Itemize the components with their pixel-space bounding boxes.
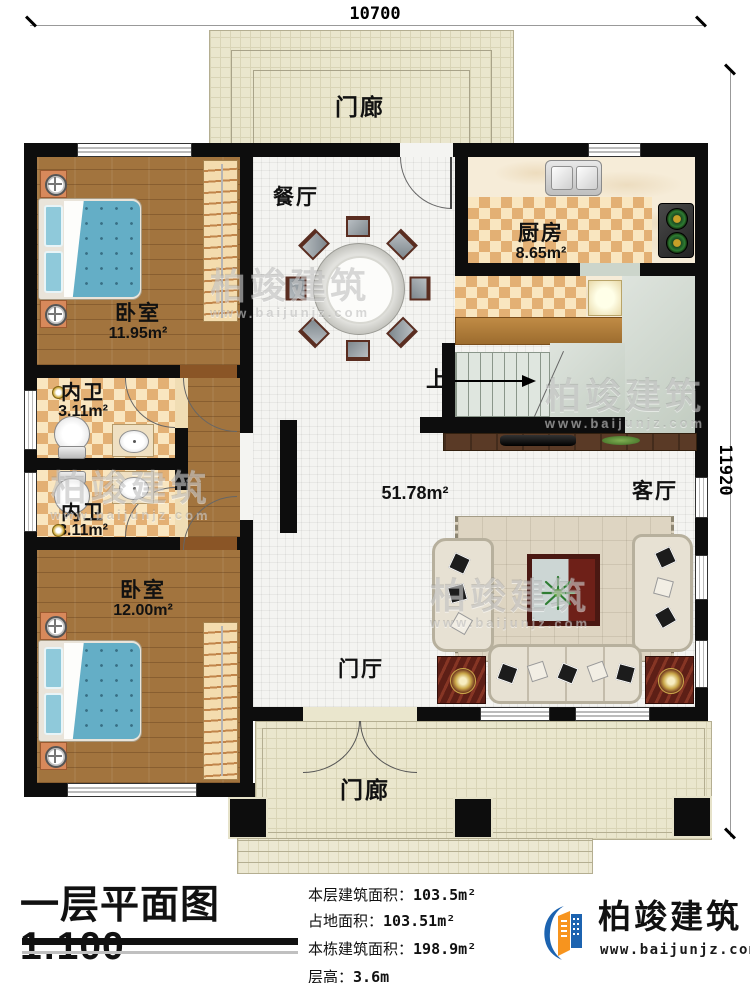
dining-chair [410,277,431,301]
sink-basin-icon [119,477,149,501]
window [588,143,641,157]
pillow [450,612,473,635]
knob-icon [45,174,67,196]
pillow [654,606,677,629]
plan-title: 一层平面图1:100 [20,886,305,968]
plant-decor [602,436,640,445]
pillow [448,552,471,575]
room-area-kitchen: 8.65m² [498,246,584,263]
porch-steps [237,838,593,874]
pillow [44,251,63,293]
room-label-foyer: 门厅 [318,659,404,681]
wall-tv [420,417,625,433]
brand-name: 柏竣建筑 [598,900,748,935]
wall-kitchen-west [455,143,468,276]
door-leaf [450,157,452,209]
dimension-top-value: 10700 [330,4,420,24]
pillow [497,663,519,685]
sink-basin-icon [119,430,149,454]
stat-value: 103.51m² [383,912,455,930]
sofa [488,644,642,704]
opening-kitchen [580,263,640,276]
pillow [653,577,674,598]
logo-icon [540,902,592,962]
footer: 一层平面图1:100 本层建筑面积：103.5m² 占地面积：103.51m² … [0,878,750,983]
pillow [527,661,548,682]
pillow [615,663,636,684]
floor-pantry [455,276,588,317]
room-label-bedroom2: 卧室 [100,580,186,602]
porch-column [453,797,493,839]
kitchen-sink [545,160,602,196]
knob-icon [45,746,67,768]
room-area-bedroom1: 11.95m² [95,326,181,343]
brand-url: www.baijunjz.com [600,942,750,958]
stat-row: 本层建筑面积：103.5m² [308,884,538,905]
opening-foyer-door [303,707,417,721]
sink-basin-icon [576,166,598,190]
floor-stair-lobby [622,276,695,433]
wardrobe-bedroom2 [203,622,238,780]
knob-icon [45,304,67,326]
wall-kitchen-south [455,263,580,276]
armchair [632,534,693,652]
wall-bath-divider [24,458,188,470]
armchair [432,538,494,652]
pillow [44,647,63,689]
stat-row: 占地面积：103.51m² [308,910,538,931]
dining-table-top [326,256,394,324]
tv [500,435,576,446]
porch-column [228,797,268,839]
window [480,707,550,721]
stat-value: 103.5m² [413,886,476,904]
pantry-appliance [588,280,622,316]
wall-right [695,143,708,721]
room-label-bath2: 内卫 [48,503,118,524]
room-area-bedroom2: 12.00m² [100,603,186,620]
stat-row: 层高：3.6m [308,966,538,983]
nightstand [40,612,67,640]
opening-entry-top [400,143,453,157]
title-underline-thick [22,938,298,945]
stat-value: 198.9m² [413,940,476,958]
room-label-living: 客厅 [612,481,698,503]
bathroom-sink [112,424,154,457]
room-label-bedroom1: 卧室 [95,303,181,325]
floor-plan-canvas: 10700 11920 门廊 上 [0,0,750,983]
stair-up-arrow [452,380,524,382]
wall-left [24,143,37,797]
wardrobe-bedroom1 [203,160,238,322]
sink-basin-icon [551,166,573,190]
pillow [587,661,609,683]
stat-label: 本栋建筑面积： [308,941,413,958]
stat-label: 本层建筑面积： [308,887,413,904]
lamp-icon [450,668,476,694]
stat-label: 层高： [308,969,353,983]
nightstand [40,742,67,770]
knob-icon [45,616,67,638]
title-underline-thin [22,951,298,954]
toilet-tank [58,446,86,459]
dining-chair [286,277,307,301]
window [24,390,37,450]
porch-column [672,796,712,838]
pantry-counter [455,317,624,345]
room-label-bath1: 内卫 [48,383,118,404]
opening-bedroom1-door [180,365,237,378]
room-label-kitchen: 厨房 [498,223,584,245]
pillow [44,205,63,247]
plant-icon [538,573,578,613]
water-heater [52,524,65,537]
window [695,640,708,688]
window [77,143,192,157]
dining-chair [346,340,370,361]
stat-label: 占地面积： [308,913,383,930]
stat-row: 本栋建筑面积：198.9m² [308,938,538,959]
stove [658,203,694,258]
room-label-dining: 餐厅 [253,187,339,209]
brand-logo: 柏竣建筑 www.baijunjz.com [540,900,745,970]
burner-icon [666,208,688,230]
lamp-icon [658,668,684,694]
coffee-table [527,554,600,626]
dimension-line-top [30,25,703,26]
room-label-porch-top: 门廊 [300,95,420,119]
nightstand [40,170,67,198]
pillow [654,546,677,569]
dimension-right-value: 11920 [715,435,735,505]
side-table [437,656,486,704]
side-table [645,656,694,704]
stat-value: 3.6m [353,968,389,983]
wall-hall-column [280,420,297,533]
window [67,783,197,797]
window [24,472,37,532]
room-area-bath1: 3.11m² [48,404,118,421]
pillow [447,583,468,604]
stats-block: 本层建筑面积：103.5m² 占地面积：103.51m² 本栋建筑面积：198.… [308,884,538,983]
window [575,707,650,721]
open-area-value: 51.78m² [370,484,460,503]
burner-icon [666,232,688,254]
nightstand [40,300,67,328]
wall-kitchen-south [640,263,708,276]
bathroom-sink [112,471,154,504]
pillow [556,662,578,684]
window [695,555,708,600]
room-label-porch-bottom: 门廊 [305,778,425,802]
stair-up-arrowhead [522,375,536,387]
dining-chair [346,216,370,237]
opening-hallway [240,433,253,520]
pillow [44,693,63,735]
